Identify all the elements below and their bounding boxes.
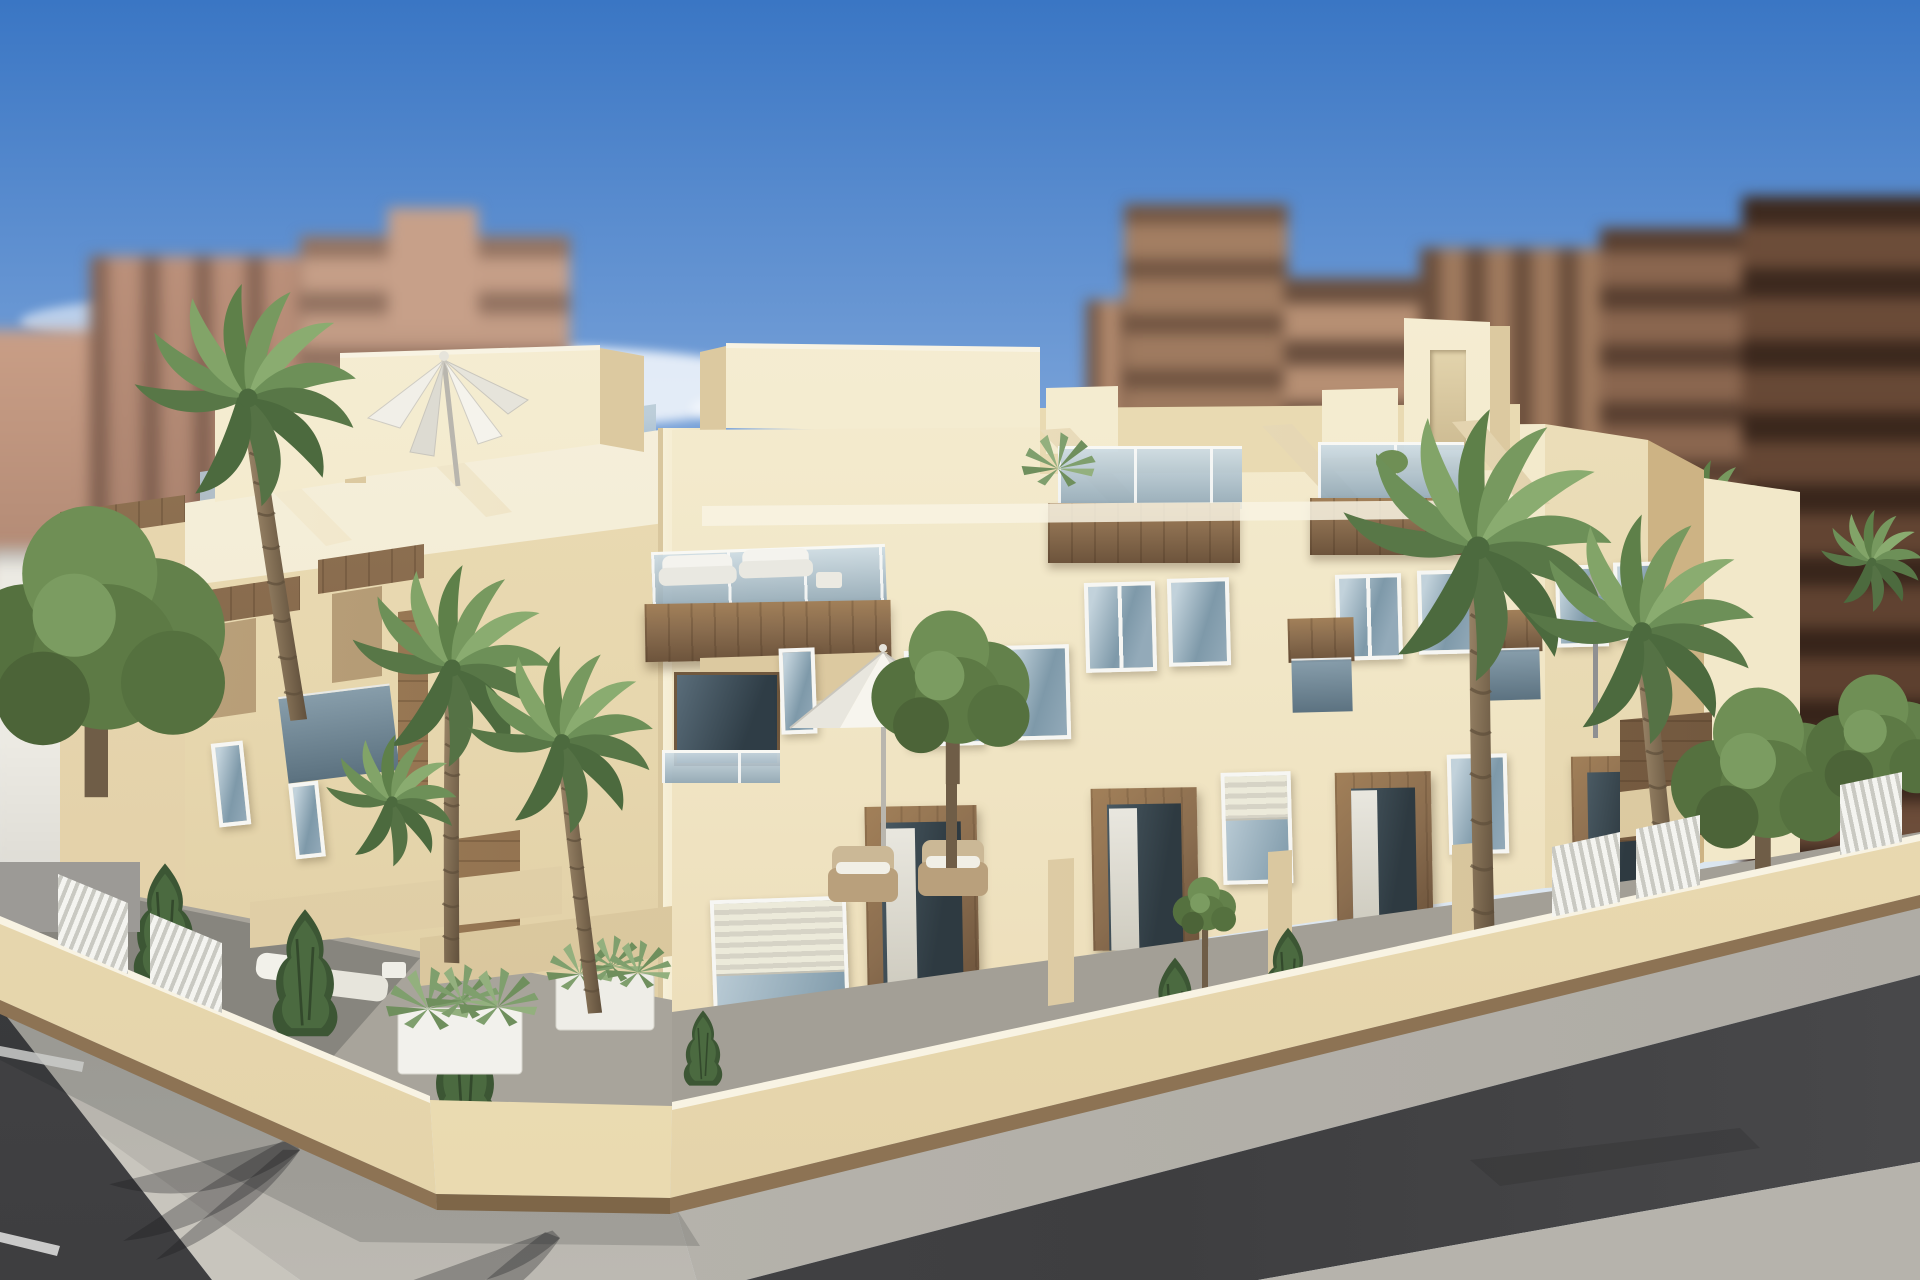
render-scene [0,0,1920,1280]
perimeter-wall [0,0,1920,1280]
